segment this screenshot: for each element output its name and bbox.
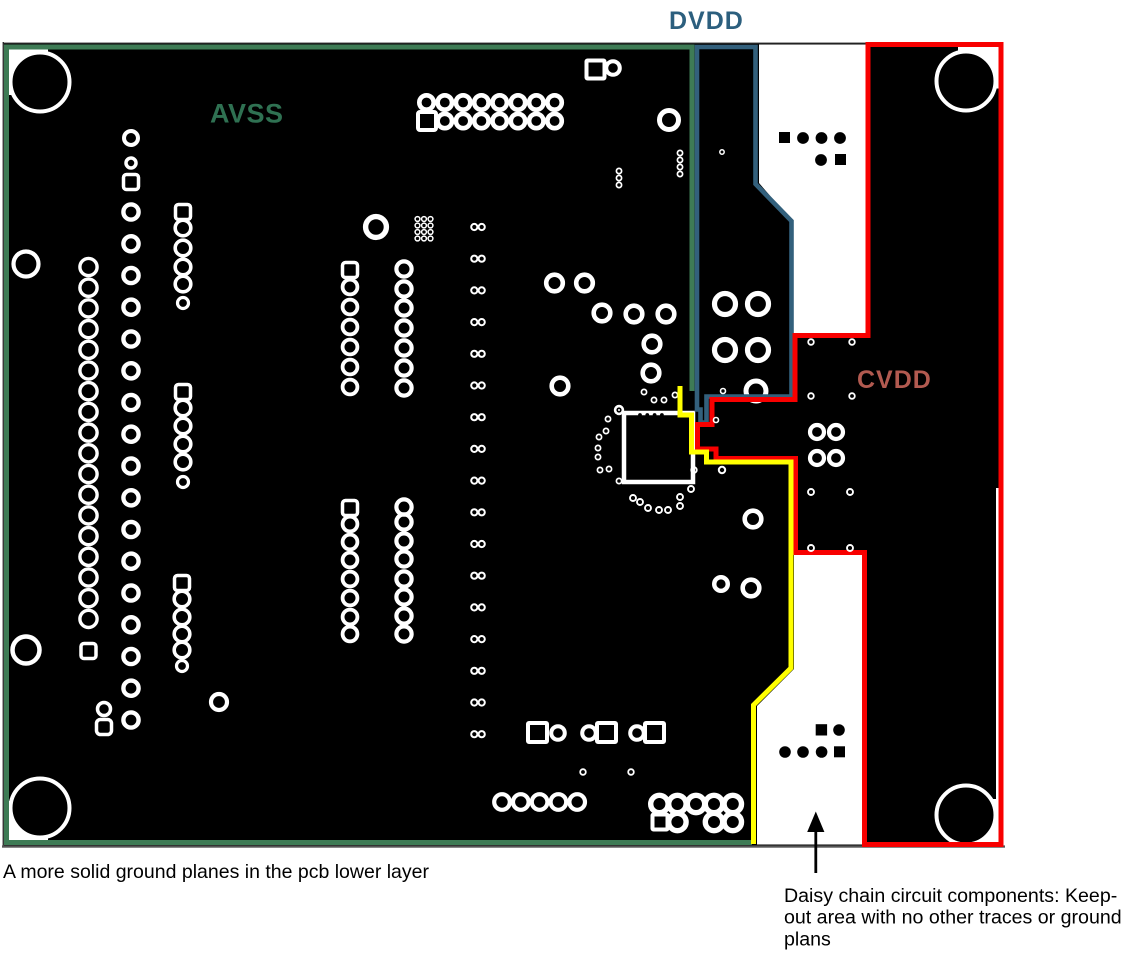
svg-text:A more solid ground planes in: A more solid ground planes in the pcb lo…: [3, 861, 429, 883]
svg-text:plans: plans: [784, 928, 831, 950]
svg-text:DVDD: DVDD: [669, 7, 744, 35]
svg-text:Daisy chain circuit components: Daisy chain circuit components: Keep-: [784, 885, 1117, 907]
svg-text:AVSS: AVSS: [210, 99, 284, 129]
svg-text:out area with no other traces: out area with no other traces or ground: [784, 907, 1122, 929]
svg-text:CVDD: CVDD: [857, 366, 932, 394]
